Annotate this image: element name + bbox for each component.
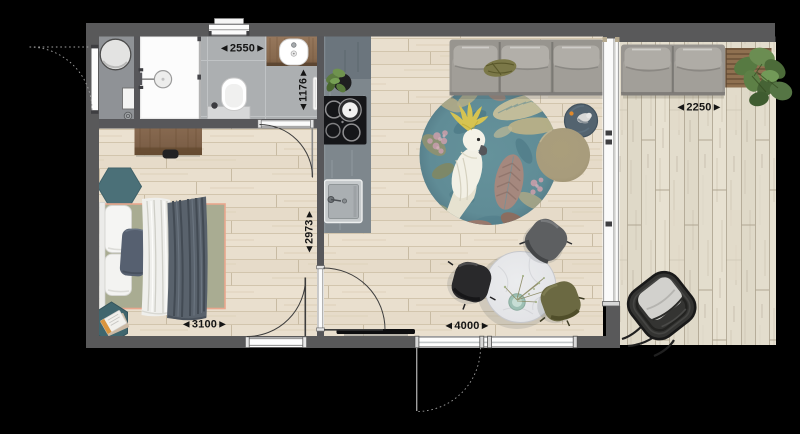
svg-text:◄2550►: ◄2550►	[219, 43, 266, 55]
svg-text:◄3100►: ◄3100►	[181, 319, 228, 331]
svg-text:◄2250►: ◄2250►	[675, 102, 722, 114]
svg-text:◄4000►: ◄4000►	[443, 320, 490, 332]
svg-text:◄1176►: ◄1176►	[298, 67, 310, 112]
svg-text:◄2973►: ◄2973►	[304, 209, 316, 255]
